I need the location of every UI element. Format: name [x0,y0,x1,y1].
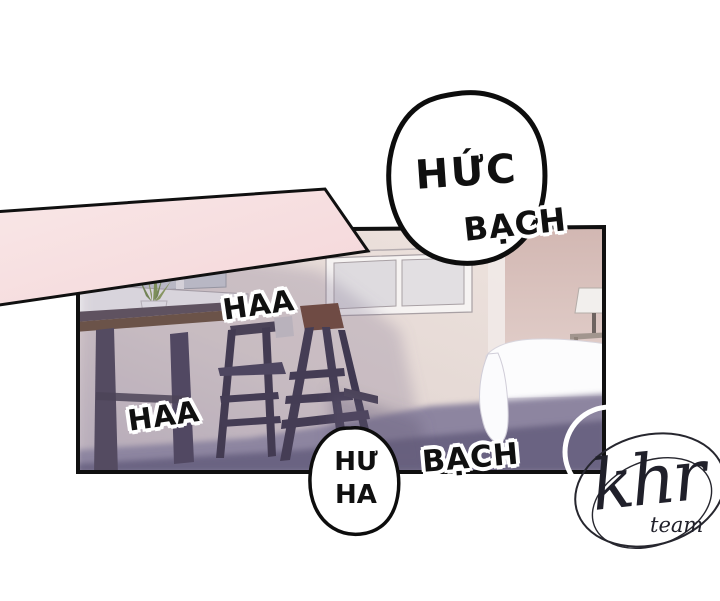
sfx-huc: HỨC [414,149,519,196]
comic-page: khr team HỨC BẠCH HAA HAA BẠCH HƯ HA [0,0,720,601]
bubble-huha-text: HƯ HA [316,446,396,511]
sfx-bach-bottom: BẠCH [421,440,520,478]
watermark-sub-text: team [650,513,703,537]
bubble-huha-line2: HA [316,479,396,512]
bubble-huha-line1: HƯ [316,446,396,479]
sfx-bach-top: BẠCH [462,203,568,246]
